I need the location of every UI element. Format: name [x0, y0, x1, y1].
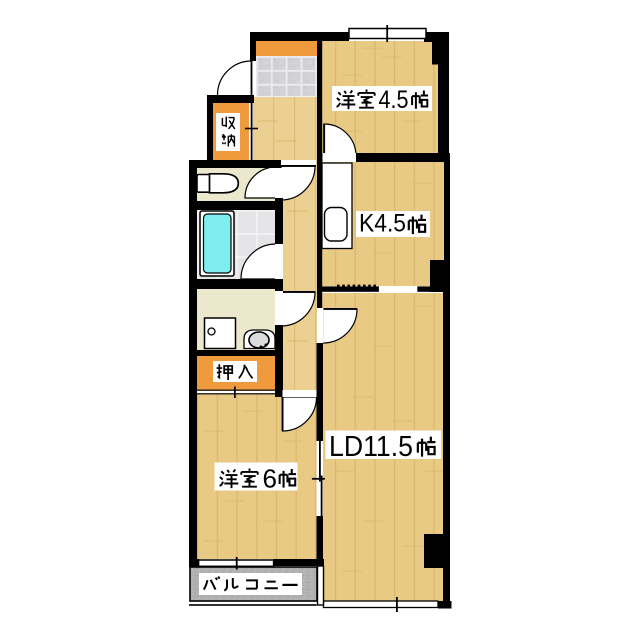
svg-text:K4.5: K4.5 — [359, 210, 406, 238]
svg-text:LD11.5: LD11.5 — [329, 431, 413, 463]
svg-text:6: 6 — [263, 464, 277, 494]
svg-text:4.5: 4.5 — [379, 86, 409, 114]
